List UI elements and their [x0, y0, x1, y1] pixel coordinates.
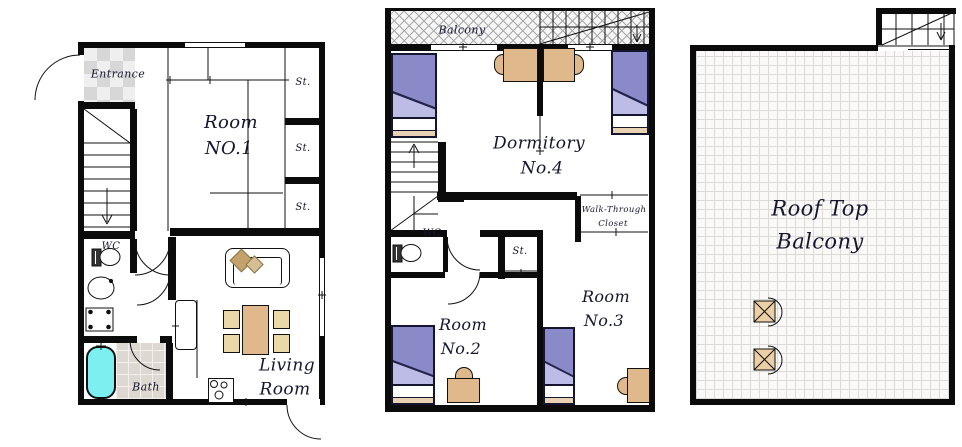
wc-label: WC — [102, 242, 121, 252]
dining-chair-icon — [273, 310, 290, 329]
dining-chair-icon — [223, 334, 240, 353]
wall — [690, 45, 878, 51]
washing-machine-icon — [86, 308, 113, 331]
walk-through-closet-label-line1: Walk-Through — [582, 206, 647, 215]
bed-foot — [545, 397, 573, 403]
desk-icon — [503, 48, 538, 82]
door-swing-arc — [447, 237, 480, 304]
single-bed-icon — [391, 325, 435, 405]
wall — [437, 192, 577, 200]
desk-chair-icon — [494, 54, 504, 75]
desk-icon — [543, 48, 575, 82]
wall — [385, 44, 431, 51]
wall — [130, 109, 137, 231]
single-bed-icon — [611, 50, 649, 135]
wall — [170, 228, 322, 236]
bed-foot — [613, 127, 647, 133]
bed-blanket — [393, 55, 435, 117]
room1-label-line1: Room — [204, 114, 258, 132]
living-room-label-line2: Room — [260, 382, 311, 399]
wall — [385, 405, 655, 412]
bed-pillow — [393, 117, 435, 130]
stove-icon — [208, 378, 234, 403]
stairs-direction-arrow-up — [409, 144, 419, 168]
wall — [876, 8, 882, 45]
desk-icon — [447, 378, 480, 403]
wc-label: WC — [423, 229, 442, 239]
bed-pillow — [393, 384, 433, 397]
storage-label: St. — [512, 247, 527, 257]
wall — [319, 42, 325, 405]
bathtub-icon — [86, 346, 116, 399]
wall — [160, 336, 172, 343]
dormitory-label-line1: Dormitory — [493, 136, 585, 153]
wall — [649, 10, 655, 412]
wall — [168, 237, 176, 300]
wall — [876, 8, 956, 14]
wall — [690, 45, 696, 405]
single-bed-icon — [391, 53, 437, 138]
bed-blanket — [393, 327, 433, 384]
wall — [130, 239, 137, 273]
desk-chair-icon — [574, 54, 584, 75]
roof-top-balcony-label-line1: Roof Top — [771, 199, 868, 220]
bed-pillow — [545, 384, 573, 397]
sink-icon — [88, 277, 114, 299]
wall — [949, 45, 955, 405]
roof-top-balcony-label-line2: Balcony — [776, 232, 863, 253]
bath-label: Bath — [132, 382, 160, 393]
wall — [575, 196, 581, 242]
floor-plan: Entrance Room NO.1 St. St. St. WC Bath L… — [0, 0, 962, 447]
bed-blanket — [545, 329, 573, 384]
wall — [443, 237, 448, 272]
room2-label-line2: No.2 — [441, 341, 481, 357]
single-bed-icon — [543, 327, 575, 405]
roof-floor-grid — [696, 51, 949, 399]
walk-through-closet-label-line2: Closet — [598, 220, 628, 229]
wall — [385, 272, 445, 278]
dining-chair-icon — [273, 334, 290, 353]
balcony-railing — [385, 8, 655, 11]
window — [431, 44, 497, 51]
wall — [480, 272, 537, 278]
kitchen-counter — [175, 300, 197, 350]
desk-icon — [627, 368, 650, 403]
stairs-direction-arrow-down — [102, 188, 112, 224]
storage-label: St. — [295, 78, 310, 88]
wall — [690, 399, 955, 405]
toilet-icon — [393, 245, 421, 263]
window — [185, 42, 245, 48]
room3-label-line2: No.3 — [584, 313, 624, 329]
wall — [166, 343, 173, 405]
room3-label-line1: Room — [582, 289, 630, 305]
storage-label: St. — [295, 144, 310, 154]
wall — [84, 102, 135, 109]
entrance-label: Entrance — [91, 69, 145, 80]
dining-chair-icon — [223, 310, 240, 329]
living-room-label-line1: Living — [259, 358, 315, 375]
wall — [78, 336, 137, 343]
storage-label: St. — [295, 203, 310, 213]
bed-foot — [393, 397, 433, 403]
staircase-up — [390, 142, 438, 231]
stairs-direction-arrow-down — [937, 23, 945, 40]
dormitory-label-line2: No.4 — [521, 161, 564, 178]
wall — [285, 177, 325, 184]
desk-chair-icon — [455, 367, 473, 379]
desk-chair-icon — [617, 377, 628, 395]
bed-pillow — [613, 114, 647, 127]
roof-access-stairs — [878, 12, 955, 50]
dining-table-icon — [242, 305, 269, 355]
bed-blanket — [613, 52, 647, 114]
door-opening — [287, 399, 320, 405]
balcony-label: Balcony — [438, 25, 485, 36]
balcony-floor-hatch — [387, 11, 649, 44]
window — [319, 258, 325, 336]
door-swing-arc — [35, 55, 80, 100]
bed-foot — [393, 130, 435, 136]
wall — [78, 231, 135, 239]
room1-label-line2: NO.1 — [205, 140, 253, 158]
wall — [285, 118, 325, 125]
room2-label-line1: Room — [439, 317, 487, 333]
staircase-down — [84, 109, 130, 227]
door-opening — [78, 55, 84, 101]
